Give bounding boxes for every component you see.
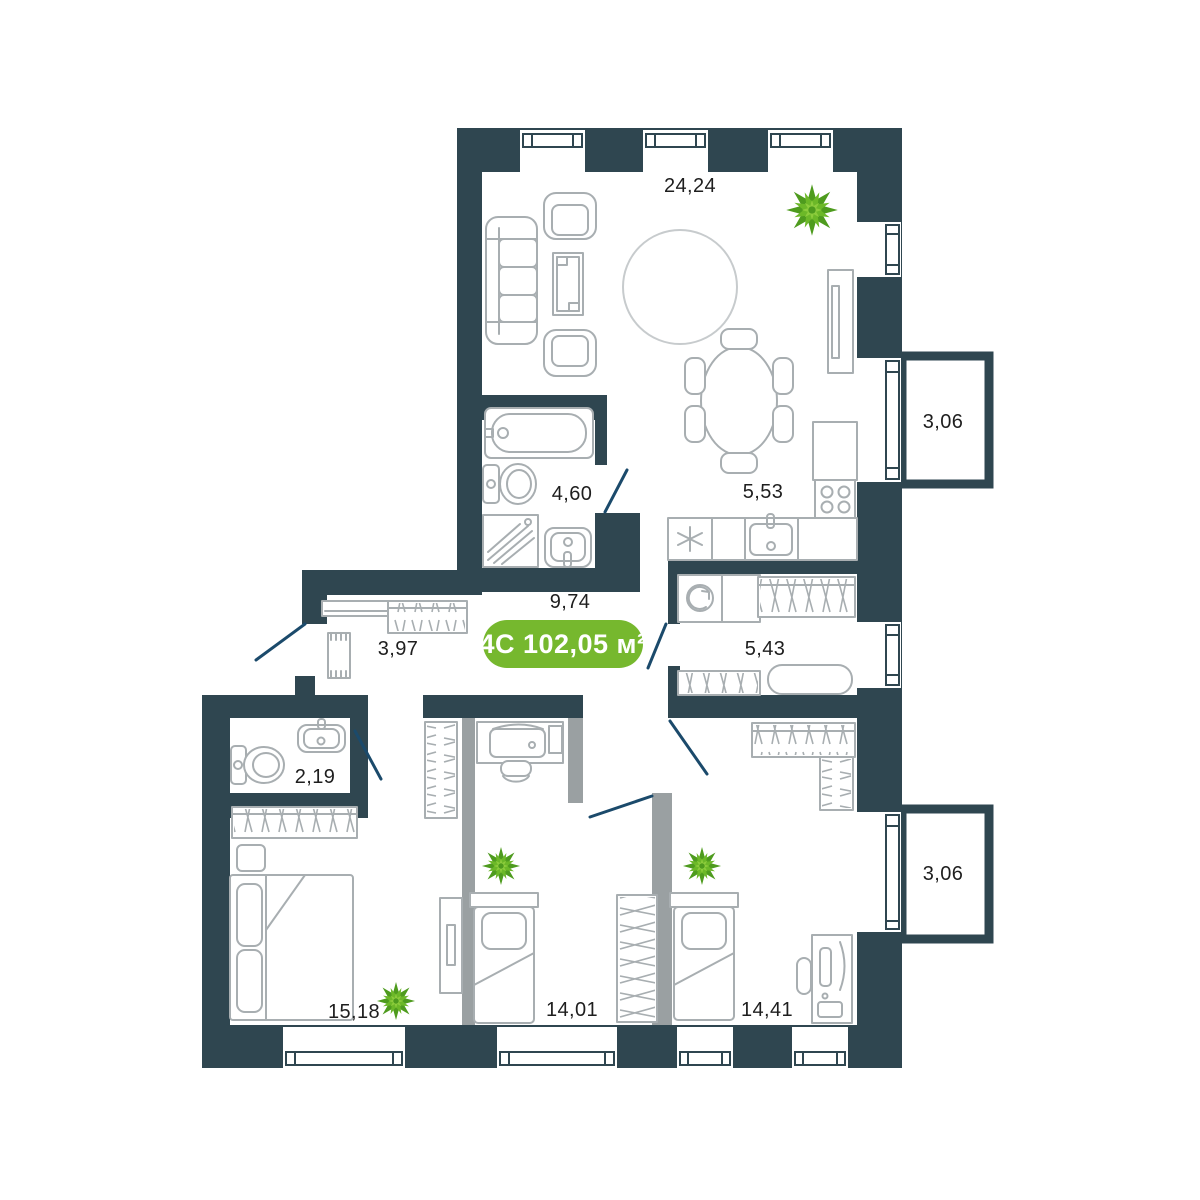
floor-plan: 24,24 4,60 5,53 9,74 5,43 3,97 2,19 15,1… — [0, 0, 1200, 1200]
desk-icon — [797, 935, 852, 1023]
wardrobe-icon — [425, 722, 457, 818]
chair-icon — [721, 453, 757, 473]
coffee-table-icon — [553, 253, 583, 315]
hall-wardrobe-icon — [388, 601, 467, 633]
shoe-bench-icon — [328, 633, 350, 678]
single-bed-icon — [470, 893, 538, 1023]
dining-table-icon — [685, 329, 793, 473]
wardrobe-icon — [752, 723, 855, 757]
window-living-right — [857, 222, 901, 277]
plant-icon — [377, 982, 415, 1020]
bedroom-main-furniture — [230, 807, 462, 1020]
window-balcony-door-top — [857, 358, 901, 482]
plant-icon — [683, 847, 721, 885]
apartment-area-badge: 4С102,05 м² — [479, 620, 646, 668]
bedroom-left-door-swing — [590, 796, 652, 817]
label-bathroom: 4,60 — [552, 483, 593, 505]
bathroom-sink-icon — [545, 528, 591, 567]
chair-icon — [685, 406, 705, 442]
wardrobe-icon — [758, 577, 855, 617]
label-living-room: 24,24 — [664, 175, 716, 197]
label-bedroom-left: 14,01 — [546, 999, 598, 1021]
single-bed-icon — [670, 893, 738, 1020]
armchair-icon — [544, 330, 596, 376]
sofa-icon — [486, 217, 537, 344]
laundry-door-swing — [648, 624, 666, 668]
wardrobe-icon — [232, 807, 357, 838]
bathtub-icon — [485, 408, 593, 458]
desk-icon — [477, 722, 563, 782]
window-top-3 — [768, 130, 833, 172]
bedroom-right-door-swing — [670, 721, 707, 774]
kitchen-cabinet-icon — [813, 422, 857, 480]
badge-text: 4С102,05 м² — [479, 629, 646, 659]
chair-icon — [773, 358, 793, 394]
plant-icon — [482, 847, 520, 885]
chair-icon — [685, 358, 705, 394]
wardrobe-icon — [820, 757, 853, 810]
bathroom-door-swing — [605, 470, 627, 512]
shower-icon — [483, 515, 538, 567]
partition-vestibule — [568, 718, 583, 803]
desk-chair-icon — [797, 958, 811, 994]
window-bottom-4 — [792, 1027, 848, 1068]
round-rug-icon — [623, 230, 737, 344]
window-top-1 — [520, 130, 585, 172]
entry-door-swing — [256, 624, 305, 660]
desk-chair-icon — [501, 761, 531, 776]
toilet-icon — [483, 464, 536, 504]
laundry-furniture — [678, 575, 855, 695]
label-laundry: 5,43 — [745, 638, 786, 660]
chair-icon — [721, 329, 757, 349]
washing-machine-icon — [678, 575, 722, 622]
label-corridor: 3,97 — [378, 638, 419, 660]
label-balcony-bottom: 3,06 — [923, 863, 964, 885]
label-wc: 2,19 — [295, 766, 336, 788]
chair-icon — [773, 406, 793, 442]
wc-toilet-icon — [231, 746, 284, 784]
label-bedroom-right: 14,41 — [741, 999, 793, 1021]
cabinet-icon — [722, 575, 760, 622]
window-top-2 — [643, 130, 708, 172]
window-bottom-1 — [283, 1027, 405, 1068]
tv-cabinet-icon — [828, 270, 853, 373]
window-bottom-2 — [497, 1027, 617, 1068]
tv-panel-icon — [440, 898, 462, 993]
floor-plan-page: 24,24 4,60 5,53 9,74 5,43 3,97 2,19 15,1… — [0, 0, 1200, 1200]
label-hall: 9,74 — [550, 591, 591, 613]
wardrobe-icon — [617, 895, 657, 1022]
nightstand-icon — [237, 845, 265, 871]
window-laundry — [857, 622, 901, 688]
stove-icon — [815, 480, 855, 518]
kitchen-counter-icon — [668, 514, 857, 560]
window-bottom-3 — [677, 1027, 733, 1068]
label-kitchen: 5,53 — [743, 481, 784, 503]
wc-sink-icon — [298, 719, 345, 752]
window-bedroom-right — [857, 812, 901, 932]
armchair-icon — [544, 193, 596, 239]
hall-shelf-icon — [322, 601, 392, 616]
ironing-board-icon — [768, 665, 852, 694]
shelf-icon — [678, 671, 760, 695]
label-bedroom-main: 15,18 — [328, 1001, 380, 1023]
label-balcony-top: 3,06 — [923, 411, 964, 433]
double-bed-icon — [230, 875, 353, 1020]
plant-icon — [786, 184, 838, 236]
